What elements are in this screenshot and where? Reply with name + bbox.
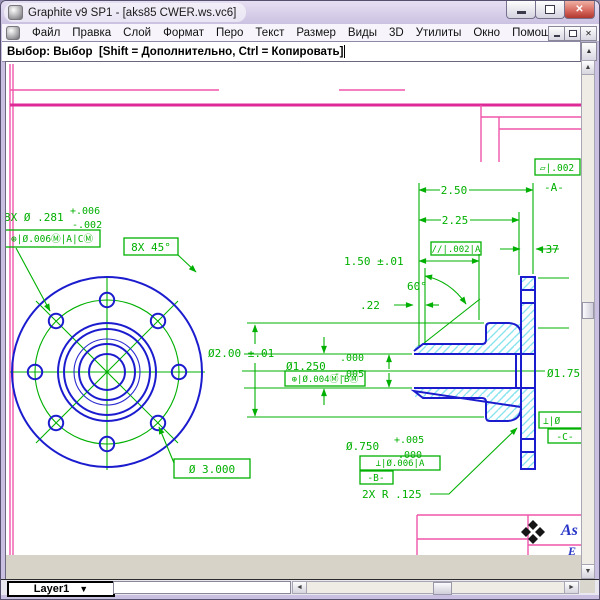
menu-utils[interactable]: Утилиты bbox=[410, 27, 468, 39]
title-block: As E bbox=[417, 515, 582, 555]
scroll-left-button[interactable]: ◄ bbox=[293, 582, 307, 593]
layer-dropdown-icon: ▼ bbox=[79, 584, 88, 594]
message-strip bbox=[113, 581, 291, 594]
menu-pen[interactable]: Перо bbox=[210, 27, 249, 39]
prompt-scroll-up-button[interactable]: ▲ bbox=[581, 42, 597, 61]
menu-bar: Файл Правка Слой Формат Перо Текст Разме… bbox=[2, 24, 599, 42]
title-bar: Graphite v9 SP1 - [aks85 CWER.ws.vc6] ✕ bbox=[1, 1, 599, 24]
menu-3d[interactable]: 3D bbox=[383, 27, 410, 39]
datum-b: -B- bbox=[367, 473, 384, 484]
dim-37: .37 bbox=[539, 243, 559, 256]
close-button[interactable]: ✕ bbox=[564, 1, 595, 19]
menu-edit[interactable]: Правка bbox=[66, 27, 117, 39]
scrollbar-corner bbox=[580, 580, 595, 593]
dim-d1-75: Ø1.75 bbox=[547, 367, 580, 380]
dim-d1-250-plus: .000 bbox=[340, 353, 364, 364]
scroll-right-button[interactable]: ► bbox=[564, 582, 578, 593]
menu-views[interactable]: Виды bbox=[342, 27, 383, 39]
datum-a: -A- bbox=[544, 181, 564, 194]
minimize-icon bbox=[517, 11, 526, 14]
dim-2-25: 2.25 bbox=[442, 214, 469, 227]
menu-file[interactable]: Файл bbox=[26, 27, 66, 39]
window-title: Graphite v9 SP1 - [aks85 CWER.ws.vc6] bbox=[28, 7, 236, 19]
mdi-minimize-icon bbox=[554, 35, 560, 37]
dim-d-750-plus: +.005 bbox=[394, 435, 424, 446]
mdi-close-button[interactable]: ✕ bbox=[580, 26, 597, 41]
document-icon bbox=[6, 26, 20, 40]
scroll-down-button[interactable]: ▼ bbox=[582, 564, 594, 578]
minimize-button[interactable] bbox=[506, 1, 536, 19]
vertical-scrollbar[interactable]: ▲ ▼ bbox=[581, 60, 595, 579]
layer-dropdown[interactable]: Layer1 ▼ bbox=[7, 581, 115, 597]
drawing-canvas[interactable]: As E bbox=[5, 61, 583, 556]
sheet-border bbox=[10, 64, 582, 555]
radius-note: 2X R .125 bbox=[362, 488, 422, 501]
menu-window[interactable]: Окно bbox=[467, 27, 506, 39]
fcf-c: ⊥|Ø bbox=[543, 416, 560, 427]
flatness-fcf: ▱|.002 bbox=[540, 163, 574, 174]
dim-1-50: 1.50 ±.01 bbox=[344, 255, 404, 268]
dim-d2-00: Ø2.00 ±.01 bbox=[208, 347, 274, 360]
ashlar-logo bbox=[521, 520, 545, 544]
parallelism-fcf: //|.002|A bbox=[432, 245, 481, 255]
layer-label: Layer1 bbox=[34, 583, 69, 595]
datum-c: -C- bbox=[556, 432, 573, 443]
front-view: 8X Ø .281 +.006 -.002 ⊕|Ø.006Ⓜ|A|CⓂ 8X 4… bbox=[6, 206, 250, 478]
prompt-bar[interactable]: Выбор: Выбор [Shift = Дополнительно, Ctr… bbox=[2, 41, 581, 62]
menu-size[interactable]: Размер bbox=[290, 27, 342, 39]
prompt-text: Выбор: Выбор [Shift = Дополнительно, Ctr… bbox=[7, 46, 343, 58]
app-window: Graphite v9 SP1 - [aks85 CWER.ws.vc6] ✕ … bbox=[0, 0, 600, 600]
maximize-button[interactable] bbox=[535, 1, 565, 19]
menu-layer[interactable]: Слой bbox=[117, 27, 157, 39]
mdi-restore-icon bbox=[569, 30, 577, 37]
dim-22: .22 bbox=[360, 299, 380, 312]
hole-note: 8X Ø .281 bbox=[6, 211, 64, 224]
perp-fcf: ⊥|Ø.006|A bbox=[376, 458, 425, 469]
menu-format[interactable]: Формат bbox=[157, 27, 210, 39]
bolt-circle-note: Ø 3.000 bbox=[189, 463, 235, 476]
scroll-up-button[interactable]: ▲ bbox=[582, 61, 594, 75]
mdi-restore-button[interactable] bbox=[564, 26, 581, 41]
brand-text: As bbox=[560, 522, 578, 539]
section-view: 2.50 2.25 ▱|.002 -A- //|.002|A .37 1.50 … bbox=[208, 159, 582, 501]
bottom-panel bbox=[5, 555, 582, 579]
mdi-close-icon: ✕ bbox=[585, 29, 592, 38]
hole-tol-plus: +.006 bbox=[70, 206, 100, 217]
cad-drawing: As E bbox=[6, 62, 582, 555]
dim-60deg: 60° bbox=[407, 280, 427, 293]
bore-fcf: ⊕|Ø.004Ⓜ|BⓂ bbox=[292, 374, 359, 385]
horizontal-scrollbar[interactable]: ◄ ► bbox=[292, 581, 579, 594]
horizontal-scroll-thumb[interactable] bbox=[433, 582, 452, 595]
brand-line2: E bbox=[567, 544, 576, 555]
hole-fcf: ⊕|Ø.006Ⓜ|A|CⓂ bbox=[11, 234, 93, 245]
status-bar: Layer1 ▼ ◄ ► bbox=[1, 579, 599, 595]
chamfer-note: 8X 45° bbox=[131, 241, 171, 254]
menu-text[interactable]: Текст bbox=[249, 27, 290, 39]
dim-d-750: Ø.750 bbox=[346, 440, 379, 453]
vertical-scroll-thumb[interactable] bbox=[582, 302, 594, 319]
text-cursor bbox=[344, 45, 345, 58]
mdi-minimize-button[interactable] bbox=[548, 26, 565, 41]
maximize-icon bbox=[545, 5, 555, 14]
title-pill: Graphite v9 SP1 - [aks85 CWER.ws.vc6] bbox=[4, 3, 246, 22]
app-icon bbox=[8, 5, 23, 20]
close-icon: ✕ bbox=[575, 5, 583, 15]
dim-2-50: 2.50 bbox=[441, 184, 468, 197]
